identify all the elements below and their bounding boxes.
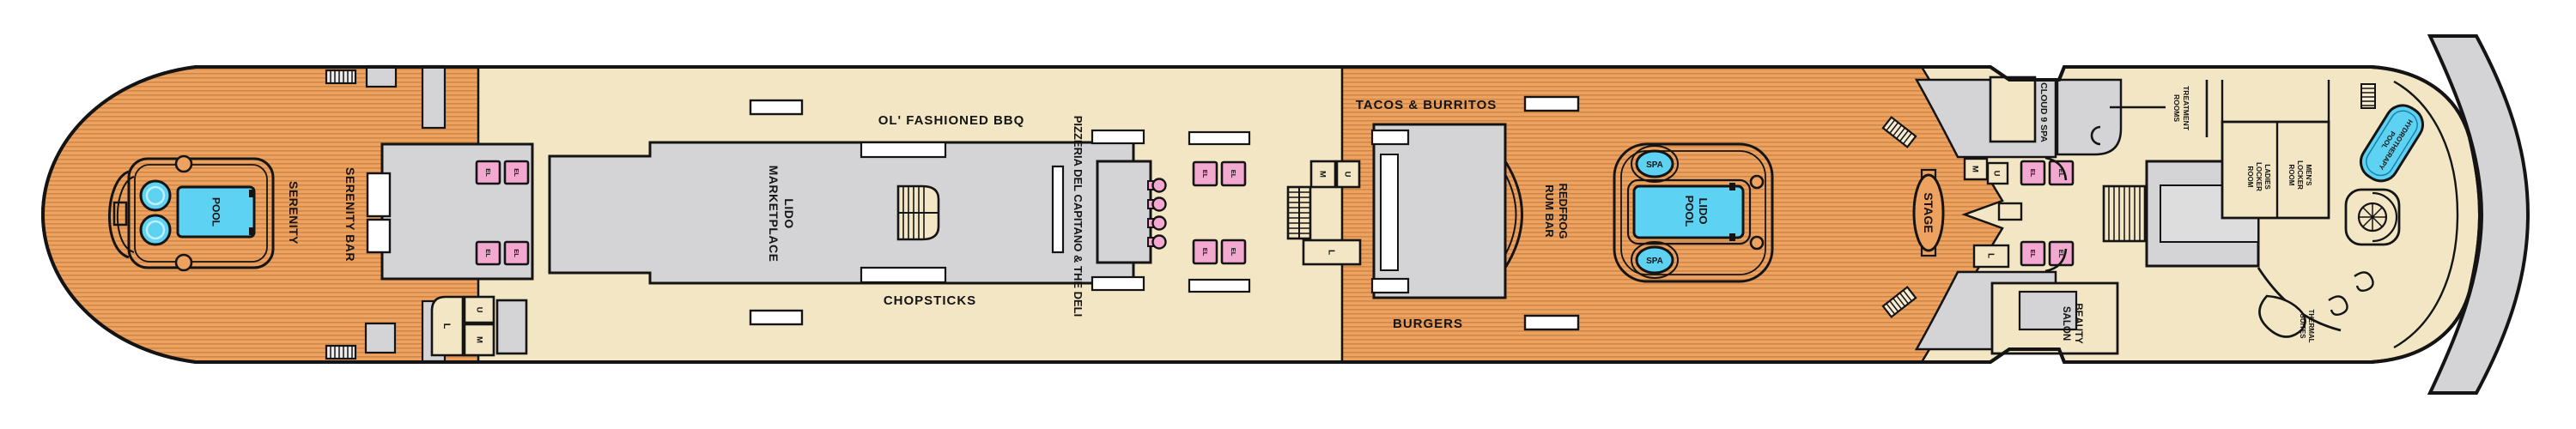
label-elevator-el: EL xyxy=(1201,248,1209,257)
label-mens-line2: LOCKER xyxy=(2296,160,2304,190)
label-redfrog-line2: RUM BAR xyxy=(1543,184,1556,238)
stairs-mid-lobby xyxy=(1288,187,1310,239)
stairs-midship xyxy=(898,186,939,239)
label-landing-m: M xyxy=(1971,166,1980,172)
deck-structure xyxy=(366,323,395,353)
label-redfrog-line1: REDFROG xyxy=(1557,184,1570,239)
label-landing-m: M xyxy=(1318,171,1327,178)
label-mens-line1: MEN'S xyxy=(2305,164,2312,186)
serving-counter xyxy=(750,311,802,324)
whirlpool-icon xyxy=(141,181,170,210)
stairs-aft-wide xyxy=(2104,186,2145,241)
label-mens-line3: ROOM xyxy=(2287,165,2295,186)
label-landing-u: U xyxy=(1343,172,1352,178)
redfrog-galley-structure xyxy=(1372,124,1522,298)
label-elevator-el: EL xyxy=(513,168,520,177)
label-landing-u: U xyxy=(475,307,484,313)
label-elevator-el: EL xyxy=(1230,170,1237,178)
deck-structure xyxy=(422,66,445,128)
label-lido-marketplace-line2: MARKETPLACE xyxy=(767,166,781,263)
label-chopsticks: CHOPSTICKS xyxy=(884,293,976,308)
serving-counter xyxy=(750,100,802,114)
label-burgers: BURGERS xyxy=(1393,317,1463,331)
aft-outer-deck-right xyxy=(2057,80,2121,154)
stairs-icon xyxy=(326,70,355,83)
serving-counter xyxy=(1525,316,1578,329)
label-ladies-line2: LOCKER xyxy=(2255,162,2263,191)
label-serenity: SERENITY xyxy=(287,181,301,245)
label-elevator-el: EL xyxy=(2029,250,2037,258)
label-lido-pool-line1: LIDO xyxy=(1697,197,1710,224)
label-ladies-line3: ROOM xyxy=(2246,166,2254,188)
label-cloud9-spa: CLOUD 9 SPA xyxy=(2038,82,2049,142)
lido-marketplace-structure xyxy=(550,142,1133,283)
label-elevator-el: EL xyxy=(1201,170,1209,178)
ship-deck-plan: SERENITY SERENITY BAR POOL LIDO MARKETPL… xyxy=(0,0,2576,429)
label-landing-u: U xyxy=(1992,171,2002,177)
serving-counter xyxy=(1525,97,1578,111)
label-elevator-el: EL xyxy=(484,249,492,257)
label-elevator-el: EL xyxy=(513,249,520,257)
label-serenity-pool: POOL xyxy=(210,197,222,227)
label-serenity-bar: SERENITY BAR xyxy=(343,167,357,262)
label-landing-l: L xyxy=(1327,250,1336,255)
label-beauty-line1: BEAUTY xyxy=(2073,303,2083,344)
label-thermal-line2: SUITES xyxy=(2299,314,2306,340)
label-elevator-el: EL xyxy=(2057,250,2065,258)
label-ol-fashioned-bbq: OL' FASHIONED BBQ xyxy=(878,113,1025,128)
label-ladies-line1: LADIES xyxy=(2263,164,2271,190)
label-elevator-el: EL xyxy=(1230,248,1237,257)
label-spa-top: SPA xyxy=(1646,160,1663,170)
label-lido-pool-line2: POOL xyxy=(1683,196,1696,227)
label-beauty-line2: SALON xyxy=(2061,306,2071,341)
label-stage: STAGE xyxy=(1922,192,1935,233)
label-treatment-line1: TREATMENT xyxy=(2182,86,2190,131)
beauty-salon-room xyxy=(1992,283,2117,353)
label-pizzeria-deli: PIZZERIA DEL CAPITANO & THE DELI xyxy=(1072,116,1084,317)
stairs-icon xyxy=(326,346,355,359)
label-elevator-el: EL xyxy=(2057,169,2065,178)
label-lido-marketplace-line1: LIDO xyxy=(782,198,796,228)
deck-plan-canvas: SERENITY SERENITY BAR POOL LIDO MARKETPL… xyxy=(0,0,2576,429)
ladder-icon xyxy=(2361,84,2375,108)
label-spa-bottom: SPA xyxy=(1646,257,1663,266)
label-landing-l: L xyxy=(1986,253,1996,258)
cloud9-entry-room xyxy=(1990,77,2035,142)
label-elevator-el: EL xyxy=(2029,169,2037,178)
label-tacos-burritos: TACOS & BURRITOS xyxy=(1356,98,1498,112)
label-landing-m: M xyxy=(475,336,484,343)
label-elevator-el: EL xyxy=(484,168,492,177)
label-treatment-line2: ROOMS xyxy=(2172,94,2181,122)
spiral-stairs xyxy=(2346,190,2399,245)
label-landing-l: L xyxy=(441,323,452,329)
whirlpool-icon xyxy=(141,215,170,245)
label-thermal-line1: THERMAL xyxy=(2307,309,2315,342)
deck-structure xyxy=(367,66,396,87)
